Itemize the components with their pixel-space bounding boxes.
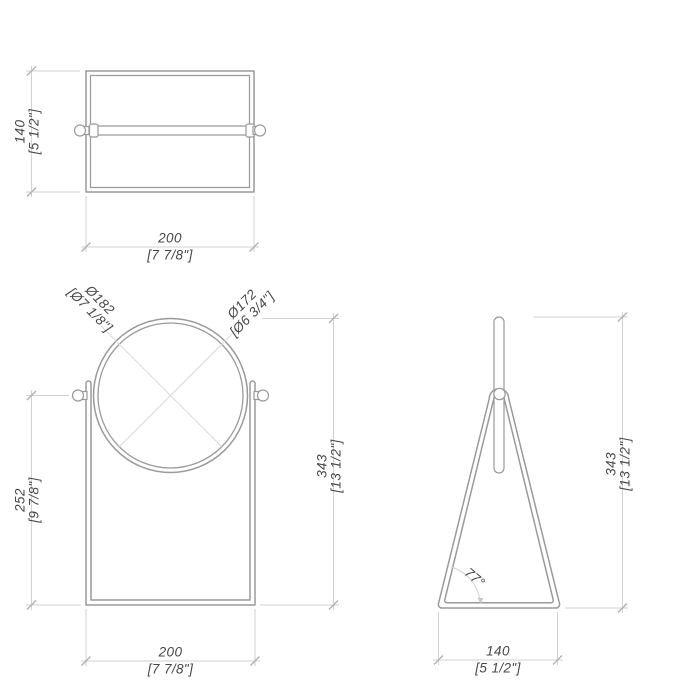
dim-value: 343 [604,452,619,476]
dim-value-imperial: [7 7/8"] [146,248,193,263]
pivot-knob-left-top [75,125,86,136]
front-view: Ø182 [Ø7 1/8"] Ø172 [Ø6 3/4"] 252 [9 7/8… [13,274,344,676]
dim-value: 140 [486,644,510,659]
dim-value-imperial: [13 1/2"] [618,436,633,491]
dim-value: 343 [315,454,330,478]
top-view: 140 [5 1/2"] 200 [7 7/8"] [13,66,266,263]
dim-side-base-angle: 77° [451,565,488,604]
dim-value-imperial: [7 7/8"] [147,662,194,677]
dim-top-depth: 140 [5 1/2"] [13,66,81,197]
dim-front-inner-diameter: Ø172 [Ø6 3/4"] [216,278,278,340]
mirror-bar-top [95,126,249,135]
pivot-knob-left-front [73,390,84,401]
mirror-bar-endcap-left [90,124,99,137]
drawing-sheet: 140 [5 1/2"] 200 [7 7/8"] Ø182 [0,0,700,700]
dim-front-total-height: 343 [13 1/2"] [260,313,344,610]
dim-value-imperial: [5 1/2"] [27,108,42,155]
dim-front-width: 200 [7 7/8"] [81,609,260,677]
dim-value: 77° [462,565,488,591]
dim-side-base-width: 140 [5 1/2"] [433,612,563,676]
dim-value: 252 [13,488,28,513]
dim-value: 200 [158,645,183,660]
dim-value: 140 [13,120,28,144]
dim-value-imperial: [5 1/2"] [474,661,521,676]
side-view: 77° 343 [13 1/2"] 140 [5 1/2"] [433,312,633,676]
technical-drawing-canvas: 140 [5 1/2"] 200 [7 7/8"] Ø182 [0,0,700,700]
dim-top-width: 200 [7 7/8"] [81,196,259,263]
dim-value-imperial: [13 1/2"] [329,438,344,493]
dim-front-outer-diameter: Ø182 [Ø7 1/8"] [64,274,126,336]
dim-value-imperial: [9 7/8"] [27,476,42,523]
pivot-knob-right-front [258,390,269,401]
dim-value: 200 [157,231,182,246]
pivot-knob-side [494,388,505,399]
pivot-knob-right-top [255,125,266,136]
dim-front-frame-height: 252 [9 7/8"] [13,390,82,610]
